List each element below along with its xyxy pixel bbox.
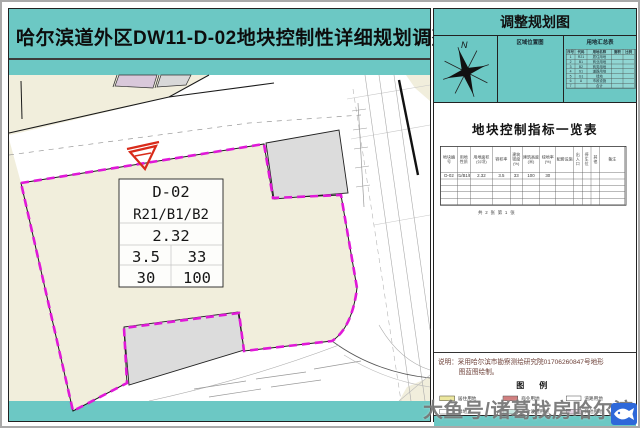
watermark-text: 大鱼号/诸葛找房哈尔滨 bbox=[423, 394, 634, 423]
indicator-col-header: 出入口 bbox=[574, 147, 583, 173]
summary-cell bbox=[623, 83, 634, 88]
title-block: N 区域位置图 用地汇总表 序号 代码 用地名称 bbox=[434, 36, 636, 103]
indicator-col-header: 备注 bbox=[600, 147, 625, 173]
indicator-empty-cell bbox=[600, 198, 625, 204]
indicator-empty-cell bbox=[556, 198, 574, 204]
compass-rose-icon: N bbox=[434, 36, 498, 98]
map-canvas: D-02 R21/B1/B2 2.32 3.5 33 30 100 bbox=[9, 75, 430, 423]
indicator-cell bbox=[556, 172, 574, 179]
indicator-cell: R21/B1/B2 bbox=[458, 172, 471, 179]
summary-cell bbox=[612, 83, 623, 88]
indicator-empty-cell bbox=[493, 198, 511, 204]
indicator-cell bbox=[582, 172, 591, 179]
indicator-col-header: 停车位 bbox=[582, 147, 591, 173]
legend-sheet: 调整规划图 N 区域位置图 用地汇总表 序号 bbox=[433, 8, 637, 422]
planning-document: 哈尔滨道外区DW11-D-02地块控制性详细规划调整 bbox=[0, 0, 640, 428]
indicator-empty-cell bbox=[522, 198, 540, 204]
plan-title-bar: 哈尔滨道外区DW11-D-02地块控制性详细规划调整 bbox=[9, 9, 430, 75]
indicator-r2c2: 33 bbox=[188, 248, 207, 266]
indicator-cell: 33 bbox=[510, 172, 522, 179]
indicator-r3c2: 100 bbox=[183, 269, 211, 287]
summary-cell bbox=[575, 83, 587, 88]
indicator-col-header: 用地性质 bbox=[458, 147, 471, 173]
indicator-empty-cell bbox=[470, 198, 492, 204]
indicator-table-title: 地块控制指标一览表 bbox=[434, 119, 636, 138]
location-map-cell: 区域位置图 bbox=[498, 36, 564, 102]
indicator-empty-cell bbox=[574, 198, 583, 204]
indicator-r3c1: 30 bbox=[137, 269, 156, 287]
far-label: 2.32 bbox=[152, 227, 189, 245]
indicator-table: 地块编号 用地性质 用地面积(公顷) 容积率 建筑密度(%) 建筑高度(米) 绿… bbox=[440, 146, 626, 206]
sheet-title: 调整规划图 bbox=[434, 9, 636, 36]
indicator-cell: 100 bbox=[522, 172, 540, 179]
indicator-empty-cell bbox=[441, 198, 458, 204]
fish-app-logo-icon bbox=[611, 403, 637, 425]
indicator-col-header: 绿地率(%) bbox=[540, 147, 556, 173]
plan-map-sheet: 哈尔滨道外区DW11-D-02地块控制性详细规划调整 bbox=[8, 8, 431, 422]
title-bar-divider bbox=[9, 58, 430, 60]
indicator-r2c1: 3.5 bbox=[132, 248, 160, 266]
plan-title: 哈尔滨道外区DW11-D-02地块控制性详细规划调整 bbox=[9, 9, 430, 50]
indicator-empty-cell bbox=[510, 198, 522, 204]
indicator-cell bbox=[574, 172, 583, 179]
landuse-summary-label: 用地汇总表 bbox=[586, 38, 613, 46]
notes-line-1: 说明：采用哈尔滨市勘察测绘研究院01706260847号地形 bbox=[434, 353, 636, 366]
compass-north-label: N bbox=[461, 40, 468, 50]
indicator-cell: D-02 bbox=[441, 172, 458, 179]
location-map-label: 区域位置图 bbox=[517, 38, 544, 46]
indicator-col-header: 地块编号 bbox=[441, 147, 458, 173]
landuse-summary-cell: 用地汇总表 序号 代码 用地名称 面积 比例 1R21居住用地2B1商业用地3B… bbox=[564, 36, 636, 102]
indicator-empty-cell bbox=[540, 198, 556, 204]
indicator-cell: 2.32 bbox=[470, 172, 492, 179]
summary-cell: 合计 bbox=[587, 83, 612, 88]
indicator-col-header: 其他 bbox=[591, 147, 600, 173]
sheet-count-note: 共 2 张 第 1 张 bbox=[478, 209, 518, 215]
summary-table: 序号 代码 用地名称 面积 比例 1R21居住用地2B1商业用地3B2商务用地4… bbox=[566, 49, 636, 89]
land-use-label: R21/B1/B2 bbox=[133, 207, 209, 223]
indicator-empty-cell bbox=[582, 198, 591, 204]
indicator-col-header: 建筑密度(%) bbox=[510, 147, 522, 173]
indicator-col-header: 建筑高度(米) bbox=[522, 147, 540, 173]
notes-line-2: 图蓝图绘制。 bbox=[434, 366, 636, 376]
indicator-col-header: 配套设施 bbox=[556, 147, 574, 173]
indicator-empty-cell bbox=[591, 198, 600, 204]
indicator-section: 地块控制指标一览表 地块编号 用地性质 用地面积(公顷) 容积率 建筑密度(%)… bbox=[434, 119, 636, 352]
parcel-id-label: D-02 bbox=[152, 183, 189, 201]
indicator-cell bbox=[600, 172, 625, 179]
indicator-cell bbox=[591, 172, 600, 179]
indicator-cell: 30 bbox=[540, 172, 556, 179]
indicator-empty-cell bbox=[458, 198, 471, 204]
indicator-col-header: 用地面积(公顷) bbox=[470, 147, 492, 173]
parcel-label-box: D-02 R21/B1/B2 2.32 3.5 33 30 100 bbox=[119, 179, 223, 287]
summary-cell: 7 bbox=[566, 83, 575, 88]
legend-title: 图 例 bbox=[434, 379, 636, 391]
indicator-cell: 3.5 bbox=[493, 172, 511, 179]
indicator-col-header: 容积率 bbox=[493, 147, 511, 173]
compass-cell: N bbox=[434, 36, 498, 102]
